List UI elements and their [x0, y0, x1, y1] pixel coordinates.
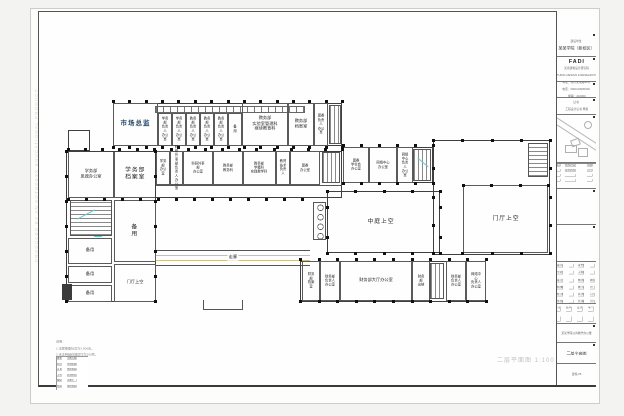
column-dot [65, 250, 68, 253]
table-row: 证书编号 [578, 262, 596, 269]
column-dot [103, 198, 106, 201]
column-dot [175, 198, 178, 201]
column-dot [549, 139, 552, 142]
cell: 水磨石 [67, 379, 77, 381]
column-dot [429, 300, 432, 303]
cell [587, 179, 593, 182]
column-dot [211, 198, 214, 201]
room-label: 门厅上空 [492, 215, 519, 222]
room-label: 门厅上空 [127, 280, 144, 285]
column-dot [292, 100, 295, 103]
column-dot [307, 148, 310, 151]
cell: 版次 [557, 164, 560, 167]
column-dot [355, 258, 358, 261]
firm-name-en: ARCHITECTURAL DESIGN & RESEARCH INSTITUT… [557, 74, 596, 78]
column-dot [341, 146, 344, 149]
table-row: 制 图 [557, 284, 578, 291]
column-dot [392, 300, 395, 303]
column-dot [490, 184, 493, 187]
signature-col-left: 设计总负责专业负责人设 计制 图校 对审 核 [557, 262, 578, 304]
cell: 地砖楼面 [67, 385, 77, 387]
cell: 设 备 [577, 307, 583, 312]
cell [569, 271, 574, 275]
column-dot [411, 258, 414, 261]
column-dot [432, 182, 435, 185]
cell [566, 317, 572, 322]
cell [590, 271, 595, 275]
signature-grid: 设计总负责专业负责人设 计制 图校 对审 核 证书编号工程编号图 别建施图 号0… [557, 262, 596, 304]
column-dot [128, 100, 131, 103]
room-label: 财务部 出纳 [417, 275, 426, 287]
room-network-center-head-2: 网络中心 负责人 办公室 [466, 261, 486, 301]
column-dot [318, 258, 321, 261]
column-dot [439, 236, 442, 239]
column-dot [432, 196, 435, 199]
table-row: 校 对 [557, 291, 578, 298]
column-dot [396, 144, 399, 147]
table-row: 设计总负责 [557, 262, 578, 269]
cell: 建 筑 [557, 307, 560, 312]
room-academic-head-2: 教务部 负责人 办公室 [200, 113, 214, 146]
column-dot [194, 100, 197, 103]
room-student-affairs-office: 学务部 办公室 [156, 151, 170, 185]
room-label: 备 用 [233, 125, 236, 133]
firm-name: 某省建筑设计研究院 [564, 67, 589, 71]
column-dot [221, 148, 224, 151]
room-student-affairs-head-2: 学务部 负责人 办公室 [172, 113, 186, 146]
atrium-void: 中庭上空 [327, 191, 440, 253]
column-dot [373, 258, 376, 261]
column-dot [411, 190, 414, 193]
room-label: 教务部 负责人 办公室 [218, 117, 225, 142]
plan-caption: 二层平面图 1:100 [497, 355, 555, 364]
contact-line: 地址：某市某某路99号 [563, 82, 591, 84]
room-spare-3: 备用 [68, 285, 112, 302]
column-dot [411, 300, 414, 303]
column-dot [466, 258, 469, 261]
room-label: 学务部 负责人 办公室 [176, 117, 183, 142]
column-dot [154, 175, 157, 178]
room-academic-archives: 教务部 档案室 [288, 103, 314, 146]
column-dot [276, 146, 279, 149]
room-label: 团委 学生会 办公室 [351, 159, 361, 171]
column-dot [154, 225, 157, 228]
column-dot [485, 300, 488, 303]
column-dot [177, 100, 180, 103]
column-dot [414, 144, 417, 147]
column-dot [432, 144, 435, 147]
room-network-center-head: 网络中心 负责人 办公室 [397, 147, 413, 183]
corner-mark-icon [593, 116, 595, 118]
stair-right-block [528, 143, 548, 177]
keyplan-building [570, 138, 581, 148]
room-label: 科研外事部 负责人 办公室 [173, 145, 179, 190]
cert-label: 证书 [574, 101, 580, 105]
column-dot [378, 182, 381, 185]
room-label: 教务部 教务科 [223, 164, 233, 172]
column-dot [145, 146, 148, 149]
room-finance-head-1: 财务部 负责人 办公室 [320, 261, 340, 301]
key-plan-box [557, 115, 596, 163]
column-dot [193, 198, 196, 201]
empty-box-2 [557, 225, 596, 262]
column-dot [341, 100, 344, 103]
column-dot [432, 167, 435, 170]
room-student-affairs-head-1: 学务部 负责人 办公室 [158, 113, 172, 146]
countersign-grid: 建 筑结 构设 备电 气 [557, 304, 596, 324]
cell: 设 计 [557, 278, 563, 282]
column-dot [112, 146, 115, 149]
column-dot [373, 300, 376, 303]
client-label: 建设单位 [571, 39, 582, 43]
room-label: 网络中心 负责人 办公室 [401, 153, 409, 178]
column-dot [227, 100, 230, 103]
empty-box-1 [557, 189, 596, 225]
column-dot [65, 225, 68, 228]
column-dot [378, 144, 381, 147]
room-youth-league-head: 团委 负责人 办公室 [314, 103, 328, 146]
note-line: 说明： [56, 340, 98, 344]
column-dot [145, 100, 148, 103]
stair-bottom-row [430, 263, 444, 299]
column-dot [187, 148, 190, 151]
room-label: 教务部 学籍科 实践教学科 [251, 162, 268, 174]
column-dot [238, 148, 241, 151]
corner-mark-icon [593, 226, 595, 228]
cell: 木地板楼面 [67, 363, 77, 365]
room-academic-section: 教务部 教务科 [213, 151, 243, 185]
room-label: 中庭上空 [368, 218, 395, 225]
column-dot [157, 198, 160, 201]
finish-legend-table: 教室水磨石楼面办公室木地板楼面走 廊地砖楼面卫生间防滑地砖楼梯间水磨石档案室地砖… [56, 356, 88, 390]
cell [569, 293, 574, 297]
room-student-union: 团委 学生会 办公室 [343, 147, 369, 183]
cell [587, 174, 593, 177]
column-dot [65, 300, 68, 303]
cell: 设计总负责 [557, 264, 563, 268]
drawing-title: 二层平面图 [566, 350, 586, 356]
cell [565, 174, 576, 177]
corner-mark-icon [593, 344, 595, 346]
column-dot [154, 150, 157, 153]
project-name-box: 某某学院公共教学办公楼 [557, 324, 596, 343]
cell: 会审修改 [565, 169, 576, 172]
column-dot [354, 190, 357, 193]
column-dot [101, 148, 104, 151]
column-dot [355, 300, 358, 303]
room-label: 团委 办公室 [300, 164, 310, 172]
cell [557, 179, 560, 182]
cell: 结 构 [566, 307, 572, 312]
column-dot [308, 100, 311, 103]
room-label: 教务部 档案室 [295, 119, 308, 130]
cell: 卫生间 [57, 374, 61, 376]
room-research-foreign-head: 科研外事部 负责人 办公室 [170, 151, 183, 185]
column-dot [461, 252, 464, 255]
room-label: 财务部大厅办公室 [359, 278, 393, 283]
stair-number-mark [94, 236, 102, 237]
room-network-center: 网络中心 办公室 [369, 147, 397, 183]
column-dot [432, 139, 435, 142]
cell: 证书编号 [578, 264, 584, 268]
column-dot [65, 150, 68, 153]
column-dot [139, 198, 142, 201]
cell: 修改内容 [565, 164, 576, 167]
cell [557, 317, 560, 322]
column-dot [154, 200, 157, 203]
column-dot [299, 300, 302, 303]
room-spare-top: 备 用 [228, 113, 242, 146]
stair-middle-band [322, 152, 340, 183]
elevator-shaft [62, 284, 72, 300]
column-dot [255, 148, 258, 151]
corridor: 走廊 [156, 250, 310, 266]
corner-mark-icon [593, 99, 595, 101]
keyplan-building [578, 148, 588, 157]
room-label: 财务部 档案室 [307, 273, 316, 290]
cert-value: 工程设计证书 甲级 [565, 108, 588, 112]
column-dot [383, 190, 386, 193]
room-label: 备用 [86, 248, 94, 253]
entrance-porch [203, 300, 243, 310]
cell: 电 气 [588, 307, 594, 312]
column-dot [65, 200, 68, 203]
corner-mark-icon [593, 83, 595, 85]
column-dot [414, 182, 417, 185]
project-name: 某某学院公共教学办公楼 [561, 331, 591, 335]
title-block: 建设单位某某学院（新校区） FADI某省建筑设计研究院ARCHITECTURAL… [556, 11, 596, 385]
column-dot [210, 100, 213, 103]
design-firm-box: FADI某省建筑设计研究院ARCHITECTURAL DESIGN & RESE… [557, 57, 596, 82]
title-block-pad [557, 11, 596, 33]
drawing-number: 建施-05 [572, 373, 581, 377]
table-row: 图 号05 [578, 284, 596, 291]
corner-mark-icon [593, 58, 595, 60]
room-label: 学务部 负责人 办公室 [162, 117, 169, 142]
cell [569, 264, 574, 268]
column-dot [520, 252, 523, 255]
room-label: 备用 [86, 272, 94, 277]
cell: 楼梯间 [57, 379, 61, 381]
corridor-label: 走廊 [227, 255, 238, 260]
table-row: 档案室地砖楼面 [57, 385, 88, 391]
column-dot [326, 236, 329, 239]
contact-line: 电话：0000-00000000 [563, 88, 591, 92]
cell: 走 廊 [57, 368, 61, 370]
column-dot [154, 250, 157, 253]
note-line: 1.本层楼面标高为3.900米。 [56, 347, 98, 351]
column-dot [326, 252, 329, 255]
column-dot [439, 206, 442, 209]
cell: 03.6 [587, 169, 593, 172]
cell: 校 对 [557, 293, 563, 297]
table-row: 建 筑结 构设 备电 气 [557, 304, 596, 314]
client-box: 建设单位某某学院（新校区） [557, 33, 596, 57]
column-dot [276, 100, 279, 103]
room-spare-1: 备用 [68, 238, 112, 264]
table-row: 工程编号 [578, 269, 596, 276]
column-dot [112, 100, 115, 103]
cell: 图 别 [578, 278, 584, 282]
room-label: 财务部 负责人 办公室 [325, 275, 335, 287]
column-dot [283, 198, 286, 201]
cell: 工程编号 [578, 271, 584, 275]
room-label: 财务部 负责人 办公室 [451, 275, 461, 287]
cell [565, 179, 576, 182]
room-spare-2: 备用 [68, 266, 112, 283]
corner-mark-icon [593, 34, 595, 36]
room-youth-league-office: 团委 办公室 [290, 151, 320, 185]
column-dot [121, 198, 124, 201]
room-lab-management: 教务部 实验室管理科 继续教育科 [242, 103, 288, 146]
room-label: 教务部 负责人 办公室 [204, 117, 211, 142]
stair-top-wing [329, 105, 341, 144]
room-academic-head-3: 教务部 负责人 办公室 [214, 113, 228, 146]
room-label: 备 用 [132, 224, 139, 239]
cell [590, 264, 595, 268]
corner-mark-icon [593, 325, 595, 327]
room-label: 学务部 办公室 [160, 160, 167, 177]
cell: 防滑地砖 [67, 374, 77, 376]
contact-box: 地址：某市某某路99号电话：0000-00000000邮编：210000 [557, 82, 596, 98]
column-dot [154, 275, 157, 278]
column-dot [65, 175, 68, 178]
room-finance-archives: 财务部 档案室 [302, 261, 320, 301]
room-finance-hall-office: 财务部大厅办公室 [340, 261, 412, 301]
column-dot [325, 100, 328, 103]
column-dot [383, 252, 386, 255]
spiral-shaft [313, 202, 326, 240]
column-dot [396, 182, 399, 185]
table-row [557, 314, 596, 324]
column-dot [354, 252, 357, 255]
room-label: 教务部 负责人 办公室 [190, 117, 197, 142]
column-dot [411, 252, 414, 255]
cell: 办公室 [57, 363, 61, 365]
room-label: 教务部 实验室管理科 继续教育科 [252, 117, 277, 133]
entrance-hall-void-right: 门厅上空 [463, 185, 548, 253]
column-dot [154, 300, 157, 303]
column-dot [229, 198, 232, 201]
cell [577, 317, 583, 322]
column-dot [299, 258, 302, 261]
room-label: 教育 技术 负责人 [280, 160, 287, 177]
column-dot [549, 167, 552, 170]
column-dot [177, 146, 180, 149]
cad-screenshot: PRODUCED BY AN AUTODESK EDUCATIONAL PROD… [0, 0, 624, 416]
column-dot [491, 252, 494, 255]
firm-logo: FADI [569, 59, 585, 64]
table-row: 图 别建施 [578, 277, 596, 284]
room-spare-big: 备 用 [114, 200, 156, 262]
column-dot [204, 148, 207, 151]
column-dot [259, 100, 262, 103]
column-dot [360, 144, 363, 147]
column-dot [549, 252, 552, 255]
cell: 05 [590, 286, 595, 290]
column-dot [491, 139, 494, 142]
cell: 比 例 [578, 293, 584, 297]
column-dot [170, 148, 173, 151]
column-dot [432, 252, 435, 255]
entrance-hall-void-left: 门厅上空 [114, 264, 156, 302]
column-dot [118, 148, 121, 151]
column-dot [243, 100, 246, 103]
table-row [557, 179, 596, 184]
revision-table: 版次修改内容日期1会审修改03.6 [557, 163, 596, 189]
column-dot [549, 196, 552, 199]
column-dot [461, 139, 464, 142]
column-dot [519, 184, 522, 187]
column-dot [342, 182, 345, 185]
client-value: 某某学院（新校区） [559, 45, 595, 51]
room-academic-head-1: 教务部 负责人 办公室 [186, 113, 200, 146]
column-dot [485, 258, 488, 261]
column-dot [462, 184, 465, 187]
column-dot [318, 300, 321, 303]
north-compass-icon [584, 121, 592, 129]
table-row: 设 计 [557, 277, 578, 284]
band-corridor-line [156, 185, 342, 186]
column-dot [326, 190, 329, 193]
column-dot [439, 190, 442, 193]
room-registry-practice: 教务部 学籍科 实践教学科 [243, 151, 276, 185]
cell: 日期 [587, 164, 593, 167]
column-dot [549, 224, 552, 227]
cell [569, 286, 574, 290]
cell: 地砖楼面 [67, 368, 77, 370]
table-row: 比 例1:100 [578, 291, 596, 298]
column-dot [336, 258, 339, 261]
drawing-number-box: 建施-05 [557, 364, 596, 385]
cell [588, 317, 594, 322]
column-dot [429, 258, 432, 261]
cell: 制 图 [557, 286, 563, 290]
cell [569, 278, 574, 282]
column-dot [448, 300, 451, 303]
column-dot [65, 275, 68, 278]
room-label: 网络中心 办公室 [376, 161, 389, 169]
column-dot [432, 224, 435, 227]
column-dot [273, 148, 276, 151]
cell: 专业负责人 [557, 271, 563, 275]
column-dot [439, 252, 442, 255]
room-finance-cashier: 财务部 出纳 [412, 261, 430, 301]
column-dot [326, 206, 329, 209]
column-dot [259, 146, 262, 149]
drawing-title-box: 二层平面图 [557, 343, 596, 364]
column-dot [84, 148, 87, 151]
cell: 水磨石楼面 [67, 357, 77, 359]
column-dot [227, 146, 230, 149]
column-dot [360, 182, 363, 185]
column-dot [392, 258, 395, 261]
column-dot [210, 146, 213, 149]
cell: 图 号 [578, 286, 584, 290]
corner-mark-icon [593, 190, 595, 192]
certificate-box: 证书工程设计证书 甲级 [557, 98, 596, 115]
column-dot [547, 184, 550, 187]
column-dot [301, 198, 304, 201]
cell: 档案室 [57, 385, 61, 387]
room-label: 科研外事部 办公室 [190, 162, 205, 174]
room-research-foreign-office: 科研外事部 办公室 [183, 151, 213, 185]
table-row: 专业负责人 [557, 269, 578, 276]
column-dot [247, 198, 250, 201]
column-dot [265, 198, 268, 201]
cell: 建施 [590, 278, 595, 282]
cell: 1:100 [590, 293, 595, 297]
